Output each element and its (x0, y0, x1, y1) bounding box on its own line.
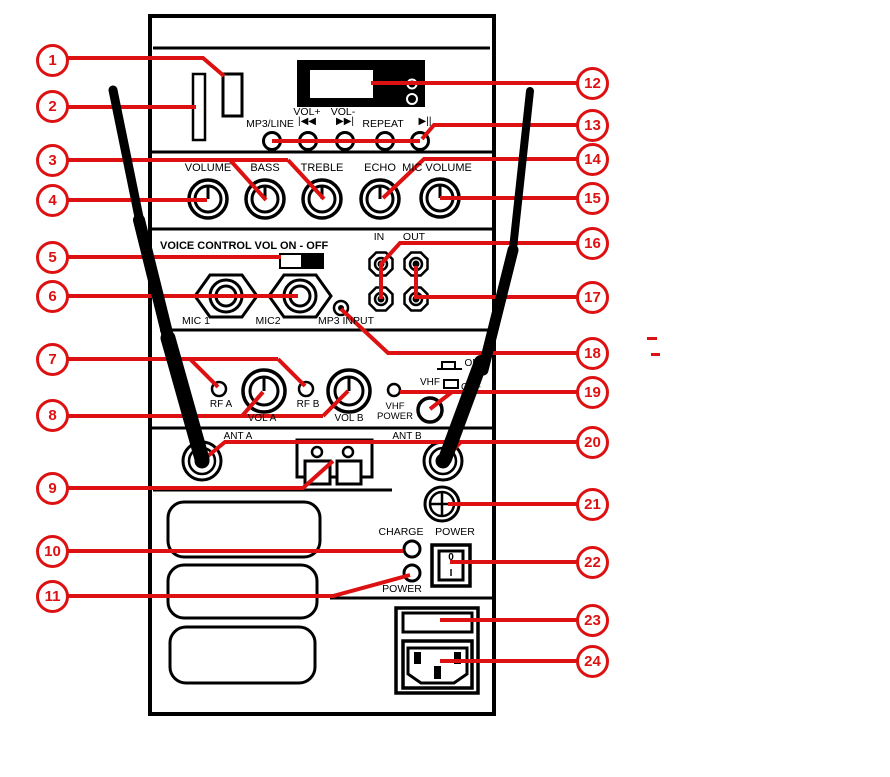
off-position-icon (444, 380, 458, 388)
mic1-label: MIC 1 (182, 316, 210, 327)
vent-panels (168, 502, 320, 683)
callout-4: 4 (36, 184, 69, 217)
callout-11: 11 (36, 580, 69, 613)
rocker-off-glyph: 0 (448, 553, 454, 563)
treble-label: TREBLE (301, 163, 344, 174)
line-out-label: OUT (403, 232, 425, 243)
rear-panel-diagram: MP3/LINE VOL+ |◀◀ VOL- ▶▶| REPEAT ▶|| VO… (0, 0, 890, 777)
callout-1: 1 (36, 44, 69, 77)
vol-a-label: VOL A (248, 414, 277, 424)
ant-b-label: ANT B (392, 432, 421, 442)
callout-7: 7 (36, 343, 69, 376)
callout-24: 24 (576, 645, 609, 678)
display-screen (310, 70, 373, 98)
charge-label: CHARGE (379, 527, 424, 538)
callout-21: 21 (576, 488, 609, 521)
stray-mark-2 (651, 353, 660, 356)
callout-6: 6 (36, 280, 69, 313)
callout-18: 18 (576, 337, 609, 370)
vhf-power-label-line2: POWER (377, 412, 413, 422)
power-led (404, 565, 420, 581)
diagram-canvas (0, 0, 890, 777)
callout-12: 12 (576, 67, 609, 100)
volume-label: VOLUME (185, 163, 231, 174)
callout-17: 17 (576, 281, 609, 314)
usb-slot (223, 74, 242, 116)
vhf-power-led (388, 384, 400, 396)
callout-20: 20 (576, 426, 609, 459)
line-in-label: IN (374, 232, 385, 243)
stray-mark-1 (647, 337, 657, 340)
callout-2: 2 (36, 90, 69, 123)
on-label: ON (465, 359, 480, 369)
callout-9: 9 (36, 472, 69, 505)
callout-13: 13 (576, 109, 609, 142)
vhf-switch-label: VHF (420, 378, 440, 388)
callout-3: 3 (36, 144, 69, 177)
rocker-on-glyph: I (450, 569, 453, 579)
power-led-label: POWER (382, 584, 422, 595)
echo-label: ECHO (364, 163, 396, 174)
ant-a-label: ANT A (224, 432, 253, 442)
callout-22: 22 (576, 546, 609, 579)
callout-16: 16 (576, 227, 609, 260)
speaker-terminal-right (337, 461, 361, 484)
power-switch-label: POWER (435, 527, 475, 538)
callout-14: 14 (576, 143, 609, 176)
mic-volume-label: MIC VOLUME (402, 163, 472, 174)
mic2-label: MIC2 (255, 316, 280, 327)
callout-8: 8 (36, 399, 69, 432)
voice-control-label: VOICE CONTROL VOL ON - OFF (160, 241, 328, 252)
fuse-drawer (403, 613, 472, 632)
vent-panel-3 (170, 627, 315, 683)
mp3-line-label: MP3/LINE (246, 119, 294, 130)
vent-panel-2 (168, 565, 317, 618)
bass-label: BASS (250, 163, 279, 174)
rf-b-label: RF B (297, 400, 320, 410)
next-track-icon: ▶▶| (336, 117, 354, 127)
vol-b-label: VOL B (334, 414, 363, 424)
play-pause-icon: ▶|| (419, 117, 432, 127)
mp3-input-label: MP3 INPUT (318, 316, 374, 327)
voice-control-switch (280, 254, 323, 268)
callout-19: 19 (576, 376, 609, 409)
callout-5: 5 (36, 241, 69, 274)
repeat-label: REPEAT (362, 119, 403, 130)
charge-led (404, 541, 420, 557)
prev-track-icon: |◀◀ (298, 117, 316, 127)
callout-10: 10 (36, 535, 69, 568)
rf-a-label: RF A (210, 400, 232, 410)
speaker-terminal-block (297, 440, 372, 484)
callout-23: 23 (576, 604, 609, 637)
off-label: OFF (461, 383, 481, 393)
vent-panel-1 (168, 502, 320, 557)
callout-15: 15 (576, 182, 609, 215)
